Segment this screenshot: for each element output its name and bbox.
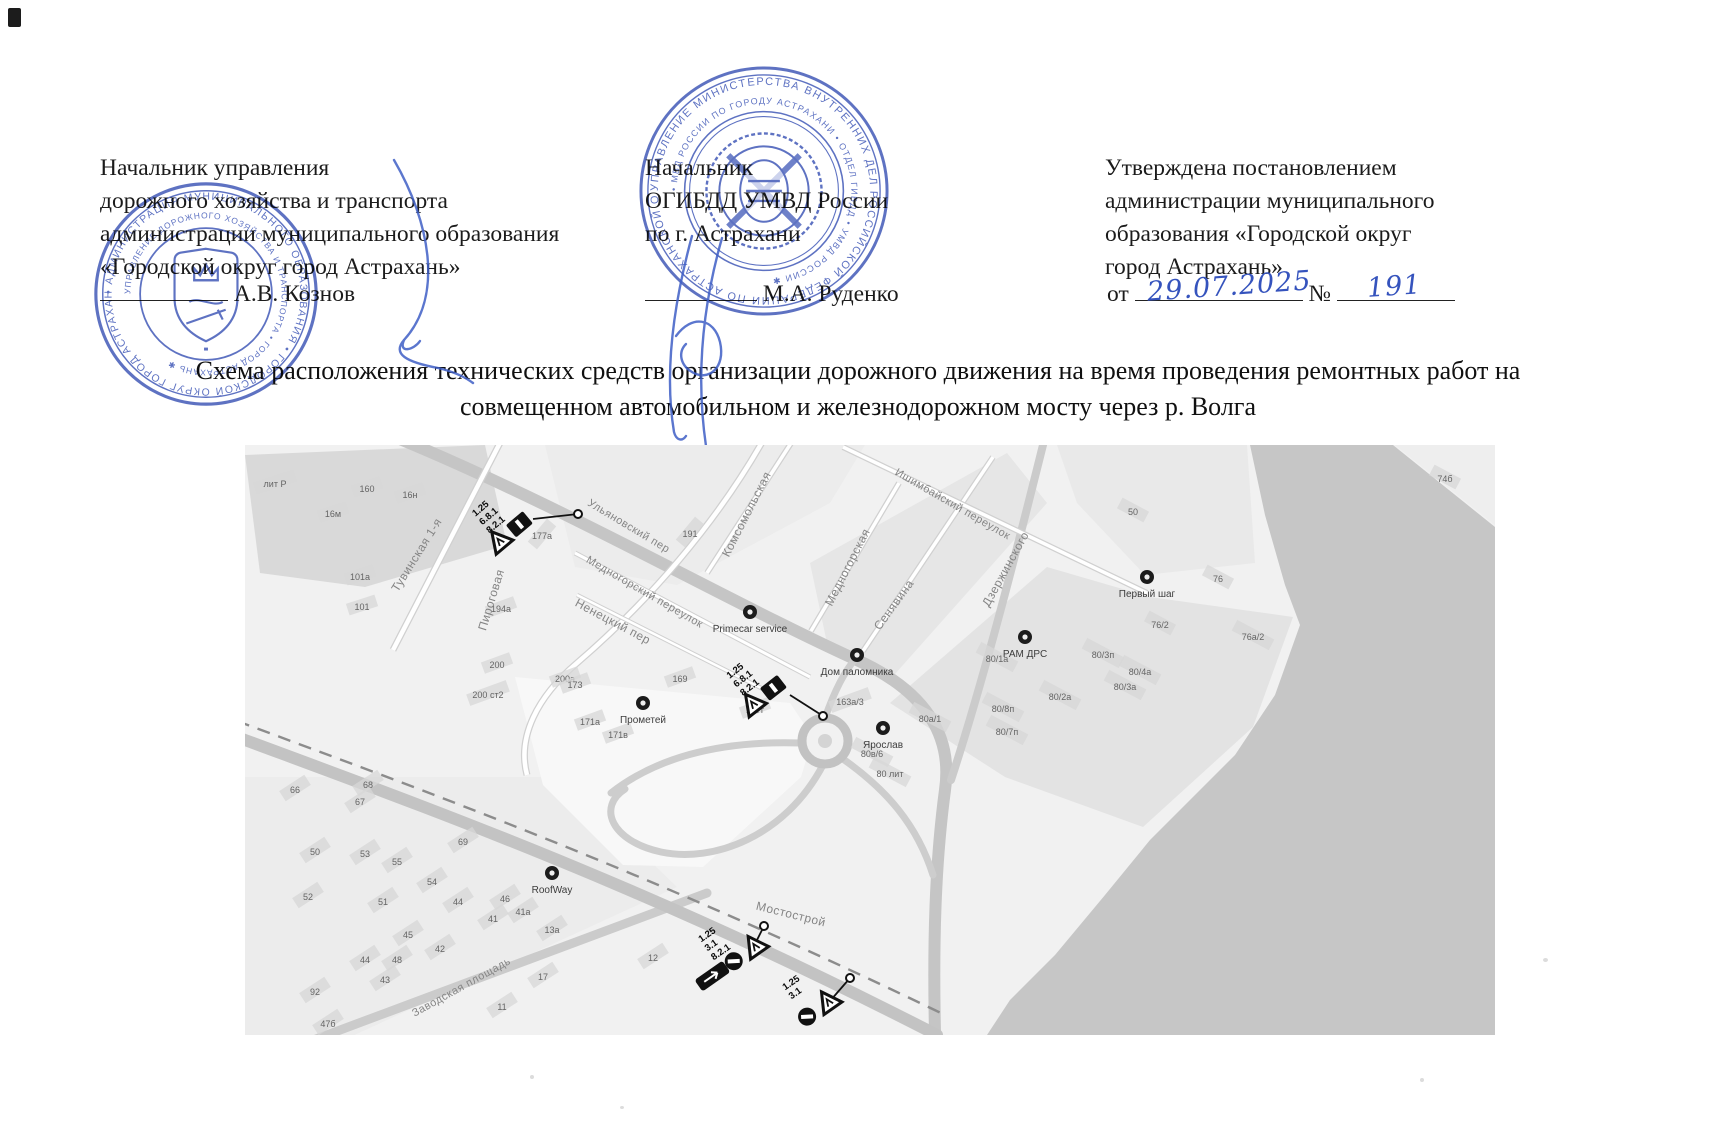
building-number: 41 <box>488 914 498 924</box>
building-number: 101 <box>354 602 369 612</box>
stamp-inner-text: УПРАВЛЕНИЕ ДОРОЖНОГО ХОЗЯЙСТВА И ТРАНСПО… <box>122 210 290 378</box>
svg-text:• АДМИНИСТРАЦИЯ МУНИЦИПАЛЬНОГО: • АДМИНИСТРАЦИЯ МУНИЦИПАЛЬНОГО ОБРАЗОВАН… <box>104 192 309 399</box>
building-number: 46 <box>500 894 510 904</box>
building-number: 43 <box>380 975 390 985</box>
scan-speck <box>1420 1078 1424 1082</box>
no-entry-bar <box>728 959 740 964</box>
building-number: 47б <box>320 1019 335 1029</box>
map-image: лит Р16016н16м101а101177а191194а200200а2… <box>245 445 1495 1035</box>
approval-date-line: 29.07.2025 <box>1135 300 1303 301</box>
building-number: 42 <box>435 944 445 954</box>
building-number: 67 <box>355 797 365 807</box>
building-number: 74б <box>1437 474 1452 484</box>
text-line: образования «Городской округ <box>1105 218 1535 251</box>
building-number: 17 <box>538 972 548 982</box>
administration-stamp: • АДМИНИСТРАЦИЯ МУНИЦИПАЛЬНОГО ОБРАЗОВАН… <box>88 176 324 412</box>
building-number: 200 ст2 <box>472 690 503 700</box>
poi-icon-dot <box>1144 574 1149 579</box>
astrakhan-coat-of-arms-icon <box>175 249 238 349</box>
poi-label: РАМ ДРС <box>1003 649 1047 660</box>
approval-date-row: от 29.07.2025 № 191 <box>1107 281 1455 308</box>
poi-label: RoofWay <box>532 885 573 896</box>
building-number: 80а/1 <box>919 714 942 724</box>
approval-right-lines: Утверждена постановлениемадминистрации м… <box>1105 152 1535 284</box>
poi-label: Первый шаг <box>1119 589 1176 600</box>
mvd-stamp: УПРАВЛЕНИЕ МИНИСТЕРСТВА ВНУТРЕННИХ ДЕЛ Р… <box>635 62 893 320</box>
building-number: 16н <box>403 490 418 500</box>
building-number: 177а <box>532 531 552 541</box>
building-number: 53 <box>360 849 370 859</box>
approval-number-line: 191 <box>1337 300 1455 301</box>
scan-speck <box>1543 958 1548 962</box>
building-number: 171а <box>580 717 600 727</box>
svg-text:УПРАВЛЕНИЕ ДОРОЖНОГО ХОЗЯЙСТВА: УПРАВЛЕНИЕ ДОРОЖНОГО ХОЗЯЙСТВА И ТРАНСПО… <box>122 210 290 378</box>
poi-icon-dot <box>549 870 554 875</box>
mvd-emblem-icon <box>706 133 821 248</box>
building-number: 69 <box>458 837 468 847</box>
building-number: 76а/2 <box>1242 632 1265 642</box>
building-number: 163а/3 <box>836 697 864 707</box>
building-number: 80/3п <box>1092 650 1115 660</box>
sign-anchor-point <box>574 510 582 518</box>
handwritten-number: 191 <box>1366 269 1423 304</box>
building-number: лит Р <box>264 479 287 489</box>
scan-speck <box>530 1075 534 1079</box>
building-number: 80/2а <box>1049 692 1072 702</box>
building-number: 54 <box>427 877 437 887</box>
building-number: 50 <box>310 847 320 857</box>
poi-icon-dot <box>880 725 885 730</box>
building-number: 41а <box>515 907 530 917</box>
building-number: 66 <box>290 785 300 795</box>
poi-icon-dot <box>640 700 645 705</box>
poi-label: Ярослав <box>863 740 903 751</box>
building-number: 13а <box>544 925 559 935</box>
building-number: 52 <box>303 892 313 902</box>
building-number: 11 <box>497 1002 506 1012</box>
city-map: лит Р16016н16м101а101177а191194а200200а2… <box>245 445 1495 1035</box>
building-number: 44 <box>360 955 370 965</box>
building-number: 160 <box>359 484 374 494</box>
no-entry-bar <box>801 1014 813 1019</box>
building-number: 55 <box>392 857 402 867</box>
poi-label: Primecar service <box>713 624 788 635</box>
sign-anchor-point <box>760 922 768 930</box>
building-number: 76 <box>1213 574 1223 584</box>
building-number: 51 <box>378 897 388 907</box>
building-number: 169 <box>672 674 687 684</box>
poi-icon-dot <box>854 652 859 657</box>
signature-stroke <box>403 340 420 349</box>
building-number: 50 <box>1128 507 1138 517</box>
building-number: 80 лит <box>877 769 904 779</box>
poi-label: Дом паломника <box>821 667 894 678</box>
building-number: 12 <box>648 953 658 963</box>
poi-icon-dot <box>1022 634 1027 639</box>
building-number: 48 <box>392 955 402 965</box>
text-line: Утверждена постановлением <box>1105 152 1535 185</box>
building-number: 191 <box>682 529 697 539</box>
scan-corner-artifact <box>8 8 21 27</box>
scan-speck <box>620 1106 624 1109</box>
poi-icon-dot <box>747 609 752 614</box>
building-number: 80/4а <box>1129 667 1152 677</box>
approval-right-block: Утверждена постановлениемадминистрации м… <box>1105 152 1535 284</box>
building-number: 76/2 <box>1151 620 1169 630</box>
building-number: 45 <box>403 930 413 940</box>
building-number: 16м <box>325 509 341 519</box>
sign-anchor-point <box>846 974 854 982</box>
building-number: 171в <box>608 730 628 740</box>
building-number: 44 <box>453 897 463 907</box>
building-number: 80/7п <box>996 727 1019 737</box>
building-number: 80/3а <box>1114 682 1137 692</box>
building-number: 80/8п <box>992 704 1015 714</box>
building-number: 200 <box>489 660 504 670</box>
building-number: 173 <box>567 680 582 690</box>
text-line: администрации муниципального <box>1105 185 1535 218</box>
sign-anchor-point <box>819 712 827 720</box>
building-number: 101а <box>350 572 370 582</box>
stamp-outer-text: • АДМИНИСТРАЦИЯ МУНИЦИПАЛЬНОГО ОБРАЗОВАН… <box>104 192 309 399</box>
poi-label: Прометей <box>620 715 666 726</box>
roundabout-island <box>818 734 832 748</box>
building-number: 92 <box>310 987 320 997</box>
approval-date-prefix: от <box>1107 281 1129 307</box>
